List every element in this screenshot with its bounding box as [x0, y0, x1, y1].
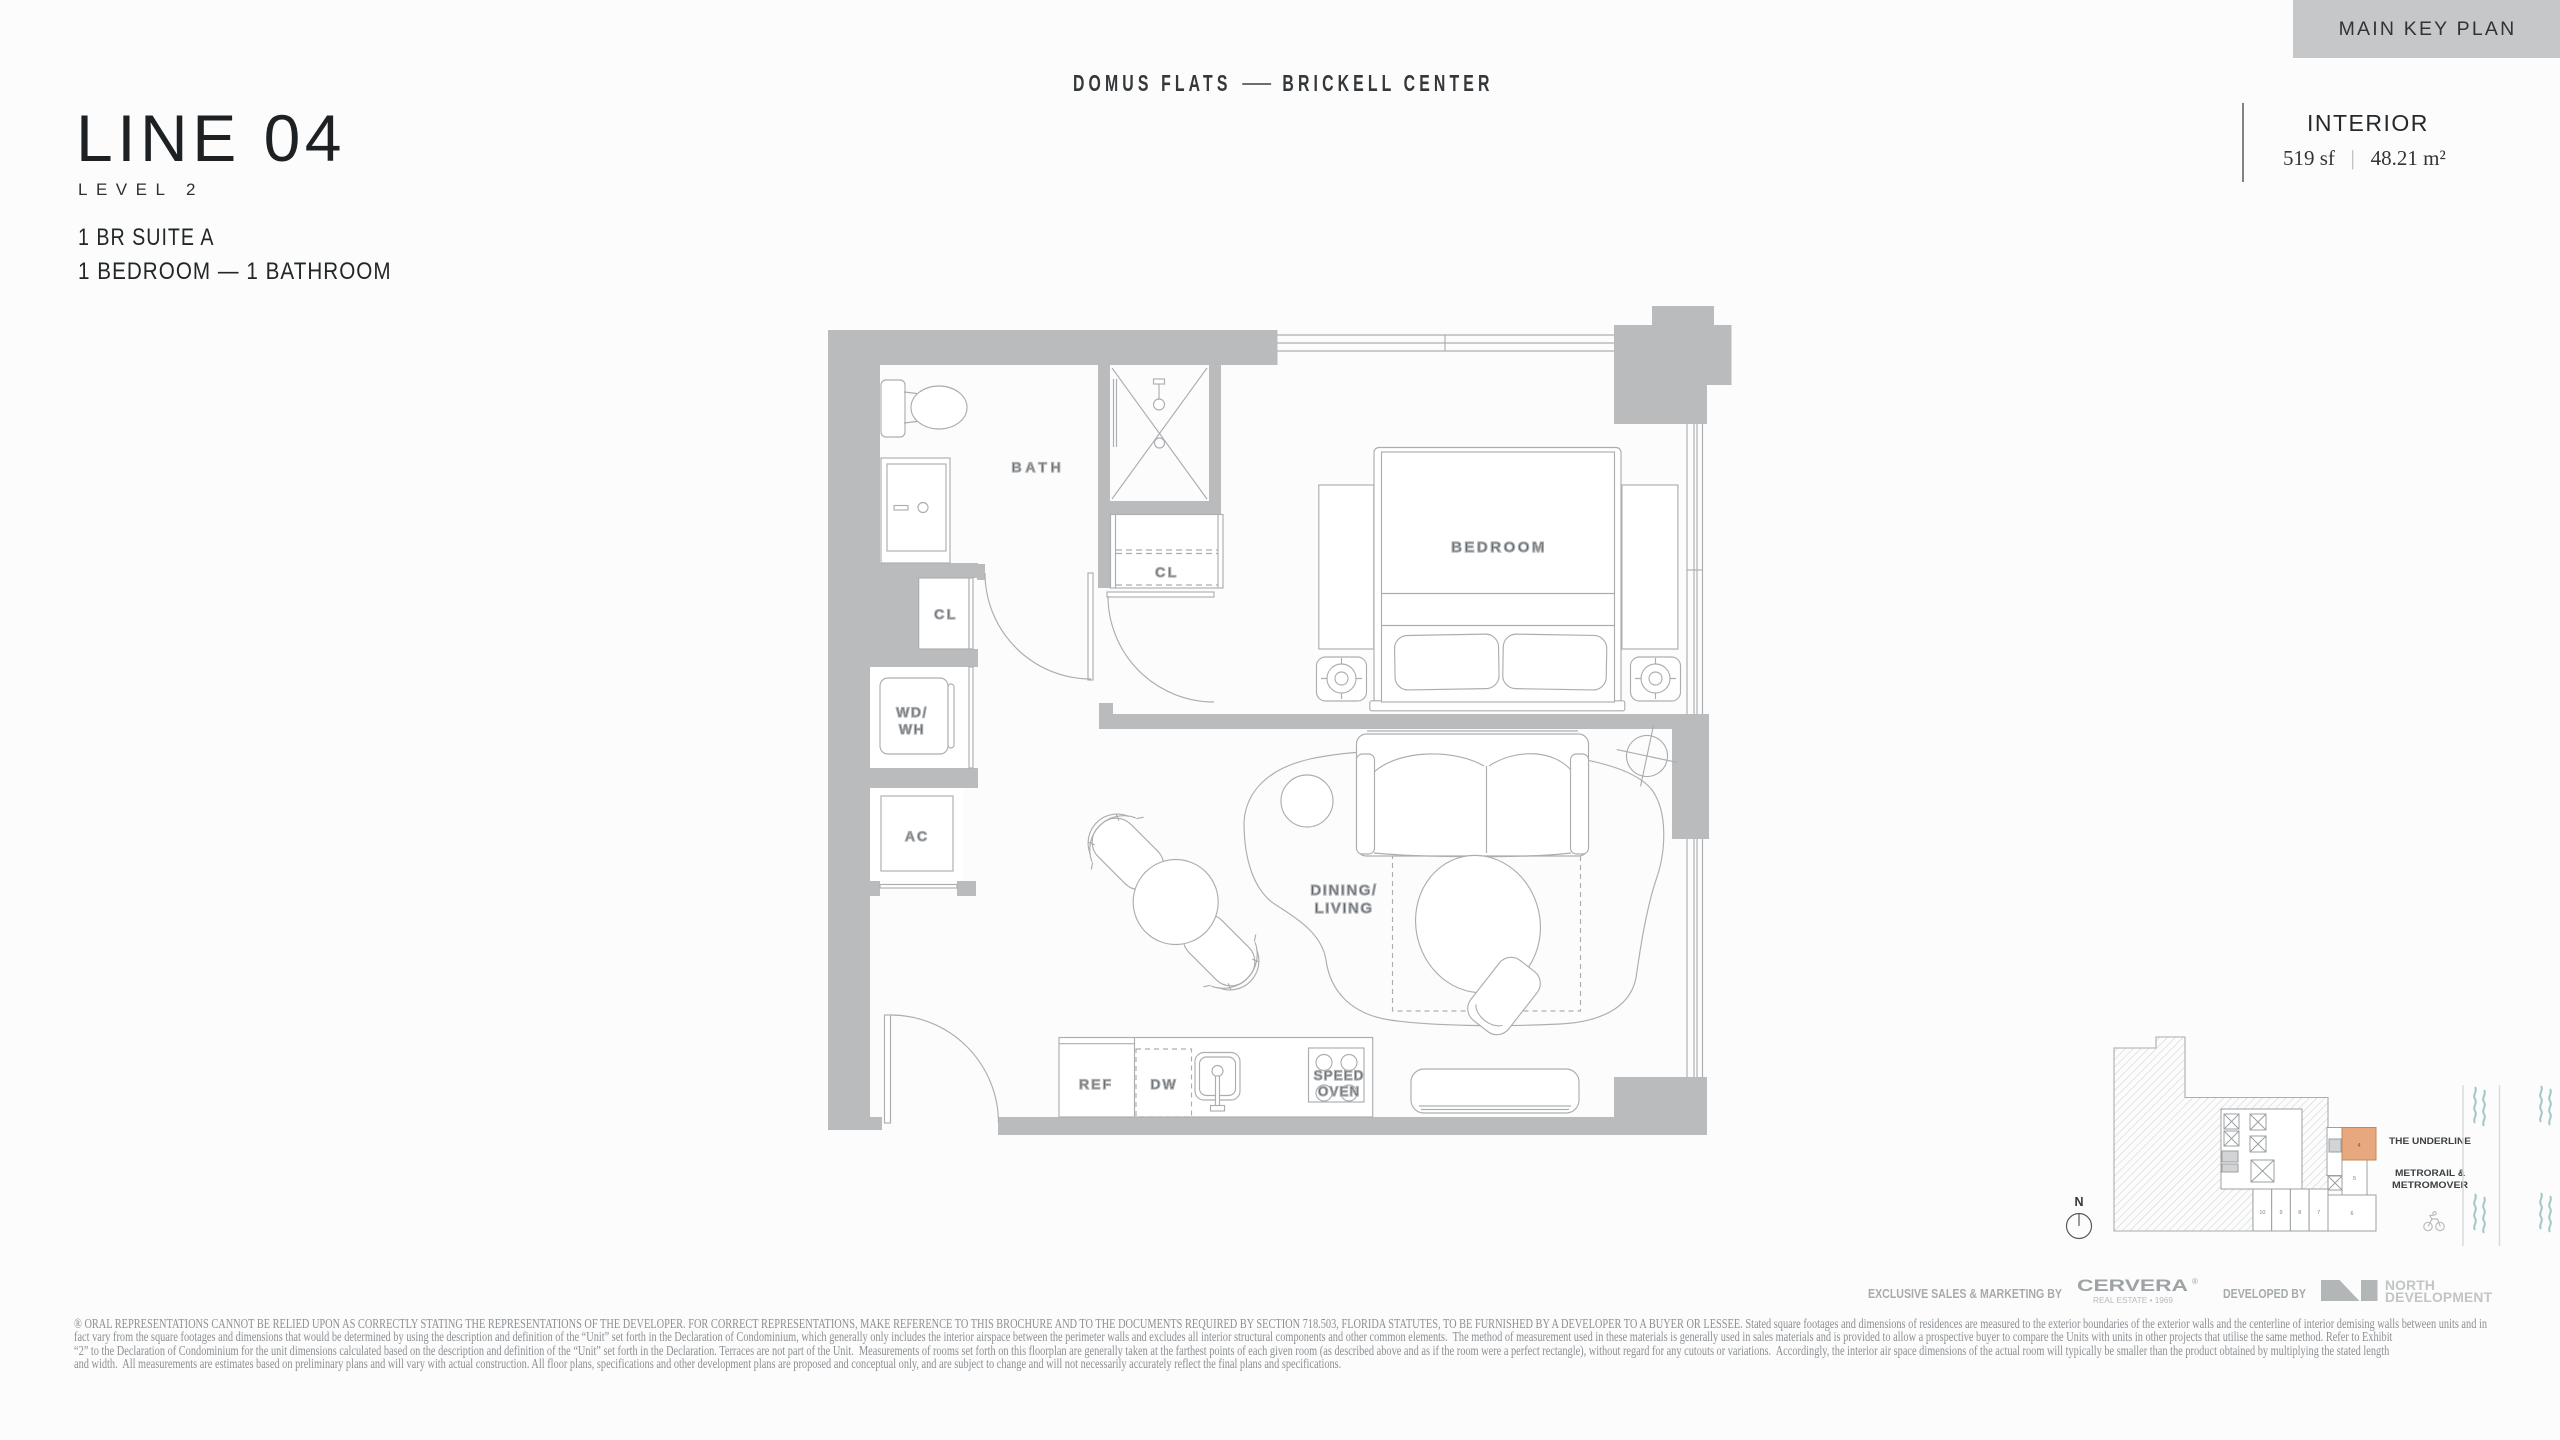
svg-text:METRORAIL &: METRORAIL &	[2395, 1168, 2466, 1178]
svg-text:REAL ESTATE • 1969: REAL ESTATE • 1969	[2093, 1296, 2174, 1305]
svg-text:REF: REF	[1079, 1076, 1113, 1092]
svg-text:SPEED: SPEED	[1314, 1068, 1365, 1083]
svg-text:®: ®	[2192, 1277, 2198, 1286]
svg-text:DEVELOPMENT: DEVELOPMENT	[2385, 1290, 2493, 1305]
svg-text:AC: AC	[905, 828, 929, 844]
svg-text:OVEN: OVEN	[1318, 1084, 1360, 1099]
svg-text:BATH: BATH	[1011, 459, 1064, 475]
svg-text:DEVELOPED BY: DEVELOPED BY	[2223, 1287, 2307, 1301]
svg-text:DW: DW	[1150, 1076, 1177, 1092]
svg-text:THE UNDERLINE: THE UNDERLINE	[2389, 1136, 2471, 1146]
svg-text:8: 8	[2298, 1210, 2301, 1216]
svg-text:10: 10	[2259, 1210, 2265, 1216]
svg-text:4: 4	[2357, 1143, 2360, 1149]
svg-text:7: 7	[2317, 1210, 2320, 1216]
svg-text:6: 6	[2350, 1211, 2353, 1217]
svg-text:BEDROOM: BEDROOM	[1451, 539, 1547, 556]
svg-text:WH: WH	[899, 721, 925, 737]
svg-text:EXCLUSIVE SALES & MARKETING BY: EXCLUSIVE SALES & MARKETING BY	[1868, 1287, 2063, 1301]
svg-text:CERVERA: CERVERA	[2077, 1277, 2188, 1295]
svg-text:CL: CL	[934, 606, 958, 622]
svg-text:5: 5	[2353, 1176, 2356, 1182]
svg-text:METROMOVER: METROMOVER	[2392, 1180, 2469, 1190]
svg-text:LIVING: LIVING	[1314, 900, 1373, 917]
svg-text:9: 9	[2279, 1210, 2282, 1216]
svg-text:WD/: WD/	[896, 704, 928, 720]
svg-text:DINING/: DINING/	[1310, 882, 1377, 899]
svg-text:CL: CL	[1155, 564, 1179, 580]
svg-text:N: N	[2074, 1195, 2083, 1209]
